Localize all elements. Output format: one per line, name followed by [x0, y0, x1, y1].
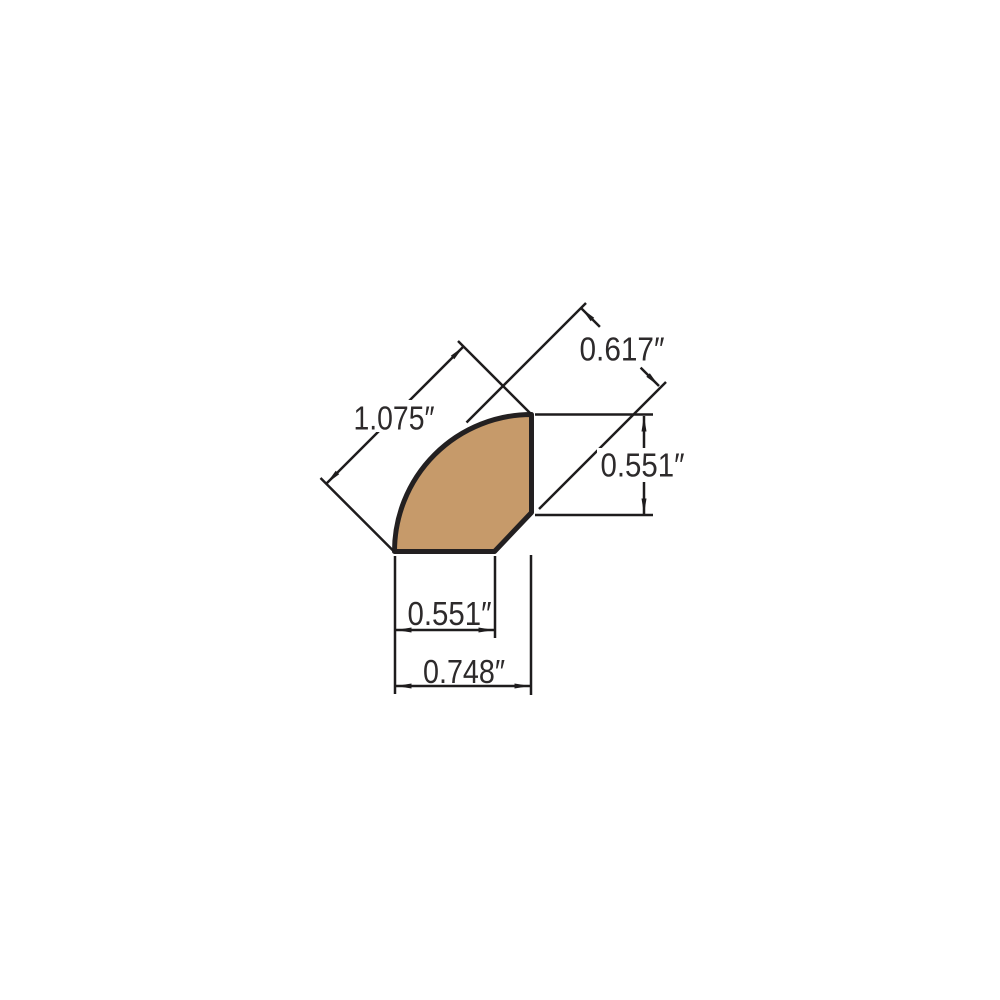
svg-text:0.617″: 0.617″ — [580, 331, 665, 368]
svg-text:0.748″: 0.748″ — [423, 653, 505, 690]
svg-text:0.551″: 0.551″ — [601, 447, 685, 484]
svg-text:0.551″: 0.551″ — [408, 595, 492, 632]
svg-text:1.075″: 1.075″ — [354, 400, 435, 437]
